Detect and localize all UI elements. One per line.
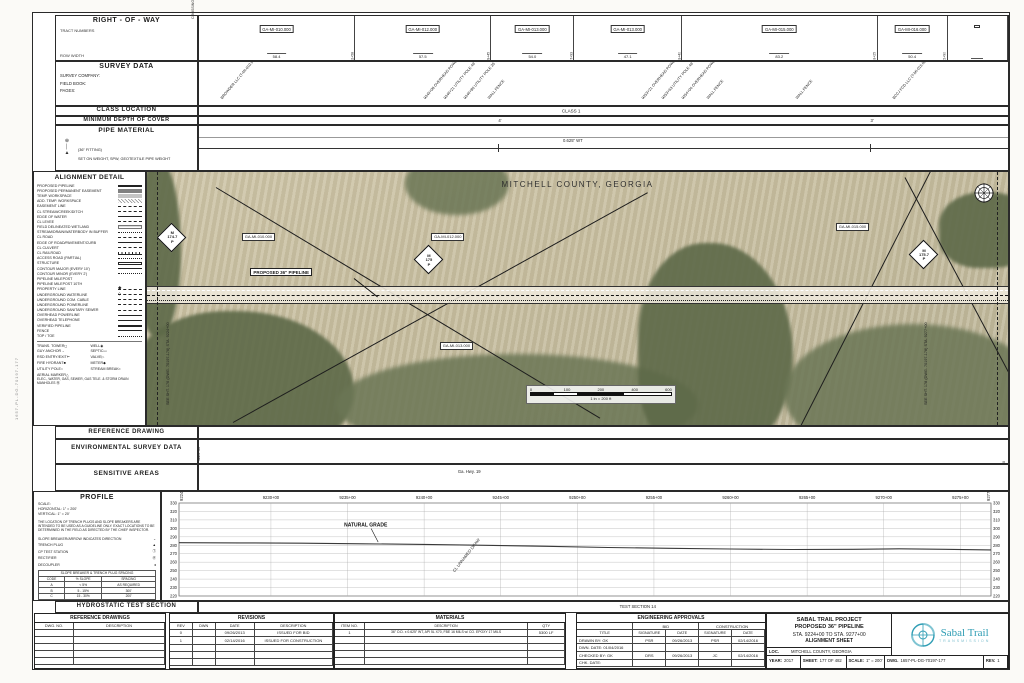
survey-band: SURVEY DATA SURVEY COMPANY: FIELD BOOK: … [33, 61, 1009, 106]
legend-line-sample [118, 268, 142, 269]
reference-drawings-title: REFERENCE DRAWINGS [35, 614, 165, 623]
svg-text:220: 220 [993, 594, 1001, 599]
legend-item-label: ADD. TEMP. WORKSPACE [37, 199, 116, 203]
material-row [335, 658, 565, 665]
sheet-file-label: 1657-PL-DG-70197-177 [14, 357, 19, 420]
legend-line-sample [118, 247, 142, 248]
hydrostatic-band: HYDROSTATIC TEST SECTION TEST SECTION 14 [33, 601, 1009, 613]
svg-text:250: 250 [993, 568, 1001, 573]
tract-row-width: 54.0 [522, 53, 542, 59]
tract-strip: GA-MI-010.000 58.4 9232+58 GA-MI-012.000… [198, 15, 1009, 61]
profile-legend-label: SLOPE BREAKER/ARROW INDICATES DIRECTION [38, 537, 121, 541]
title-block: SABAL TRAIL PROJECT PROPOSED 36" PIPELIN… [766, 613, 1009, 669]
svg-text:320: 320 [170, 509, 178, 514]
symbol-icon: → [61, 349, 65, 353]
svg-text:9235+00: 9235+00 [339, 495, 356, 500]
legend-line-sample [118, 315, 142, 316]
project-stations: STA. 9224+00 TO STA. 9277+00 [767, 632, 891, 639]
row-header: RIGHT - OF - WAY TRACT NUMBERS ROW WIDTH [55, 15, 198, 61]
sensitive-areas-content: Ga. Hwy. 19 [198, 464, 1009, 491]
profile-v-scale: VERTICAL: 1" = 20' [38, 512, 156, 517]
symbol-label: RSD ENTRY/EXIT [37, 355, 67, 359]
crossing-callout: WALL FENCE [487, 79, 505, 100]
tract-cell: GA-MI-012.000 57.5 9239+45 [355, 16, 491, 60]
symbol-label: UTILITY POLE [37, 367, 61, 371]
alignment-sheet: 1657-PL-DG-70197-177 RIGHT - OF - WAY TR… [0, 0, 1024, 683]
profile-band: PROFILE SCALE: HORIZONTAL: 1" = 200' VER… [33, 491, 1009, 601]
svg-text:290: 290 [170, 534, 178, 539]
legend-line-sample [118, 232, 142, 233]
legend-item-label: ACCESS ROAD (PARTIAL) [37, 256, 116, 260]
symbol-icon: ○ [61, 367, 63, 371]
materials-title: MATERIALS [335, 614, 565, 623]
reference-drawings-table: REFERENCE DRAWINGS DWG. NO. DESCRIPTION [34, 613, 166, 669]
svg-text:280: 280 [993, 543, 1001, 548]
profile-legend-icon: ▲ [153, 543, 156, 547]
legend-item-label: EDGE OF ROAD/PAVEMENT/CURB [37, 241, 116, 245]
symbol-icon: ■ [64, 361, 66, 365]
depth-content: 4'3' [198, 116, 1009, 125]
env-station-left: 9224+00 [198, 447, 201, 461]
scale-bar-ticks: 0100200400600 [530, 387, 672, 392]
legend-line-sample [118, 189, 142, 193]
legend-item-label: OVERHEAD TELEPHONE [37, 318, 116, 322]
class-location-header: CLASS LOCATION [55, 106, 198, 116]
revisions-title: REVISIONS [170, 614, 333, 623]
reference-drawings-row [35, 644, 165, 651]
survey-title: SURVEY DATA [56, 63, 197, 70]
depth-header: MINIMUM DEPTH OF COVER [55, 116, 198, 125]
north-arrow-icon [973, 182, 995, 209]
tract-cell: GA-MI-013.000 47.1 9253+40 [574, 16, 682, 60]
profile-legend-item: DECOUPLER ♦ [38, 561, 156, 568]
tract-cell: GA-MI-015.000 83.2 9263+25 [682, 16, 878, 60]
legend-line-sample [118, 221, 142, 222]
reference-drawings-row [35, 630, 165, 637]
svg-text:9250+00: 9250+00 [569, 495, 586, 500]
symbol-icon: ▭ [103, 349, 106, 353]
legend-item-label: PIPELINE MILEPOST 10TH [37, 282, 116, 286]
tract-row-width [971, 58, 983, 59]
svg-text:240: 240 [170, 577, 178, 582]
material-row [335, 651, 565, 658]
milepost-marker: M 175.7 P [909, 240, 939, 270]
depth-band: MINIMUM DEPTH OF COVER 4'3' [33, 116, 1009, 125]
symbol-label: METER [91, 361, 104, 365]
legend-item-label: OVERHEAD POWERLINE [37, 313, 116, 317]
legend-line-sample [118, 199, 142, 203]
legend-line-sample [118, 206, 142, 207]
sensitive-areas-title: SENSITIVE AREAS [56, 470, 197, 477]
revisions-table: REVISIONS REV DWN DATE DESCRIPTION 009/2… [169, 613, 334, 669]
svg-text:270: 270 [170, 551, 178, 556]
pipe-weight-note: SET ON WEIGHT, SPW, GEOTEXTILE PIPE WEIG… [78, 155, 170, 164]
logo-mark-icon [910, 622, 936, 648]
sheet-number: 177 OF 482 [820, 658, 842, 663]
reference-drawings-row [35, 658, 165, 665]
approval-row: DWN. DATE: 01/04/2016 [577, 644, 765, 652]
pipe-tick [498, 144, 499, 153]
spacing-table: SLOPE BREAKER & TRENCH PLUG SPACING CODE… [38, 570, 156, 601]
legend-line-sample [118, 194, 142, 198]
legend-item-label: PROPERTY LINE [37, 287, 116, 291]
milepost-p: P [171, 240, 174, 244]
profile-note: THE LOCATION OF TRENCH PLUGS AND SLOPE B… [38, 520, 156, 532]
profile-legend-label: DECOUPLER [38, 563, 60, 567]
legend-line-sample [118, 282, 142, 287]
legend-line-sample [118, 225, 142, 229]
reference-drawing-content [198, 426, 1009, 439]
profile-legend-items: SLOPE BREAKER/ARROW INDICATES DIRECTION … [38, 535, 156, 568]
legend-line-sample [118, 216, 142, 217]
survey-fields: SURVEY COMPANY: FIELD BOOK: PAGES: [56, 70, 197, 97]
depth-value: 4' [498, 118, 501, 123]
legend-item-label: TOP / TOE [37, 334, 116, 338]
svg-text:9270+00: 9270+00 [876, 495, 893, 500]
tract-station: 9247+93 [569, 52, 573, 61]
reference-drawing-band: REFERENCE DRAWING [33, 426, 1009, 439]
legend-line-sample [118, 211, 142, 212]
approval-row: CHECKED BY: GKDRS09/26/2013JC02/14/2016 [577, 652, 765, 660]
legend-title: ALIGNMENT DETAIL [37, 174, 142, 181]
hydrostatic-title: HYDROSTATIC TEST SECTION [56, 603, 197, 609]
legend-item: PIPELINE MILEPOST 10TH [37, 282, 142, 287]
tract-cell: GA-MI-016.000 50.4 9272+90 [878, 16, 948, 60]
legend-line-sample [118, 320, 142, 321]
svg-text:CL UNNAMED DRAW: CL UNNAMED DRAW [452, 537, 481, 573]
pipe-secondary-line [199, 137, 1008, 138]
drawing-frame: RIGHT - OF - WAY TRACT NUMBERS ROW WIDTH… [32, 12, 1010, 670]
legend-item-label: PROPOSED PIPELINE [37, 184, 116, 188]
revision-row [170, 652, 333, 659]
tract-row-width: 58.4 [267, 53, 287, 59]
matchline-left-text: SEE SHT. 176 (DWG. 70197-176) STA. 9224+… [166, 322, 170, 405]
pipe-tick [870, 144, 871, 153]
tract-number: GA-MI-012.000 [405, 25, 440, 33]
legend-item-label: UNDERGROUND WATERLINE [37, 293, 116, 297]
svg-text:9265+00: 9265+00 [799, 495, 816, 500]
symbol-icon: ◆ [103, 361, 106, 365]
symbol-icon: △ [66, 373, 69, 377]
company-logo: Sabal Trail TRANSMISSION [892, 614, 1008, 655]
symbol-label: SEPTIC [91, 349, 104, 353]
legend-line-sample [118, 252, 142, 255]
revision-row [170, 645, 333, 652]
profile-legend-icon: Ⓡ [153, 556, 157, 561]
map-band: ALIGNMENT DETAIL PROPOSED PIPELINE PROPO… [33, 171, 1009, 426]
svg-text:290: 290 [993, 534, 1001, 539]
symbol-label: FIRE HYDRANT [37, 361, 64, 365]
reference-drawings-row [35, 651, 165, 658]
legend-line-sample [118, 330, 142, 331]
pipe-material-header: PIPE MATERIAL ⊕│▲ (36" FITTING) SET ON W… [55, 125, 198, 171]
profile-legend-label: RECTIFIER [38, 556, 56, 560]
pipe-material-band: PIPE MATERIAL ⊕│▲ (36" FITTING) SET ON W… [33, 125, 1009, 171]
manhole-icon: Ⓜ [56, 381, 59, 385]
approvals-bid-label: BID [633, 623, 699, 629]
tract-cell: GA-MI-013.000 54.0 9247+93 [491, 16, 574, 60]
row-title: RIGHT - OF - WAY [56, 17, 197, 24]
environmental-header: ENVIRONMENTAL SURVEY DATA [55, 439, 198, 464]
environmental-band: ENVIRONMENTAL SURVEY DATA 9224+00 9277+0… [33, 439, 1009, 464]
legend-item: TOP / TOE [37, 333, 142, 338]
svg-text:270: 270 [993, 551, 1001, 556]
tract-number: GA-MI-015.000 [762, 25, 797, 33]
svg-text:310: 310 [170, 517, 178, 522]
legend-item-label: CL RAILROAD [37, 251, 116, 255]
profile-scale-notes: SCALE: HORIZONTAL: 1" = 200' VERTICAL: 1… [38, 502, 156, 517]
crossing-callout: BCCJ FCD LLC (T-MI-015.000) [892, 61, 929, 100]
legend-line-sample [118, 289, 142, 290]
pipe-material-notes: (36" FITTING) SET ON WEIGHT, SPW, GEOTEX… [78, 146, 170, 164]
legend-line-sample [118, 262, 142, 266]
map-tract-label: GA-MI-015.000 [836, 223, 869, 231]
svg-text:300: 300 [993, 526, 1001, 531]
title-block-footer: YEAR:2017 SHEET:177 OF 482 SCALE:1" = 20… [767, 655, 1008, 668]
vegetation-patch [146, 311, 354, 426]
svg-text:9260+00: 9260+00 [722, 495, 739, 500]
tract-number: GA-MI-016.000 [895, 25, 930, 33]
legend-item-label: STREAM/DRAIN/WATERBODY IN BUFFER [37, 230, 116, 234]
svg-text:330: 330 [993, 501, 1001, 506]
profile-legend-icon: ⌄ [153, 537, 156, 541]
profile-legend-label: TRENCH PLUG [38, 543, 63, 547]
reference-drawings-row [35, 637, 165, 644]
revision-row [170, 659, 333, 666]
profile-chart: 3303303203203103103003002902902802802702… [161, 491, 1009, 601]
profile-legend-label: CP TEST STATION [38, 550, 68, 554]
svg-text:330: 330 [170, 501, 178, 506]
svg-text:9245+00: 9245+00 [493, 495, 510, 500]
logo-name: Sabal Trail [939, 627, 990, 639]
pipe-material-content: 0.625" WT [198, 125, 1009, 171]
environmental-content: 9224+00 9277+00 [198, 439, 1009, 464]
profile-legend-icon: Ⓣ [153, 549, 157, 554]
svg-text:NATURAL GRADE: NATURAL GRADE [344, 523, 388, 529]
depth-value: 3' [870, 118, 873, 123]
pipe-material-title: PIPE MATERIAL [56, 127, 197, 134]
profile-legend-icon: ♦ [154, 563, 156, 567]
milepost-marker: M 174.7 P [157, 223, 187, 253]
symbol-icon: ◉ [100, 344, 103, 348]
proposed-pipeline-label: PROPOSED 36" PIPELINE [250, 268, 312, 276]
vegetation-patch [146, 171, 181, 336]
legend-line-sample [118, 258, 142, 259]
vegetation-patch [784, 324, 1009, 426]
svg-text:280: 280 [170, 543, 178, 548]
project-name: SABAL TRAIL PROJECT [767, 617, 891, 624]
field-book-label: FIELD BOOK: [60, 80, 193, 88]
legend-symbols-right: WELL◉SEPTIC▭VALVE▷METER◆STREAM BREAK≈ [91, 343, 143, 378]
map-tract-label: GA-MI-012.000 [431, 233, 464, 241]
reference-drawing-header: REFERENCE DRAWING [55, 426, 198, 439]
scale-bar: 0100200400600 1 in = 200 ft [526, 385, 676, 404]
symbol-icon: ▷ [102, 355, 105, 359]
legend-symbol: STREAM BREAK≈ [91, 366, 143, 372]
pipe-main-line [199, 148, 1008, 149]
class-location-title: CLASS LOCATION [56, 107, 197, 113]
legend-item-label: CL CULVERT [37, 246, 116, 250]
symbol-label: TRANS. TOWER [37, 344, 64, 348]
crossing-callout: WALL FENCE [795, 79, 813, 100]
legend-item-label: UNDERGROUND COM. CABLE [37, 298, 116, 302]
scale-value: 1" = 200' [866, 658, 882, 663]
depth-title: MINIMUM DEPTH OF COVER [56, 117, 197, 123]
tract-row-width: 47.1 [618, 53, 638, 59]
tract-number: GA-MI-013.000 [515, 25, 550, 33]
svg-text:9224+00: 9224+00 [179, 492, 184, 501]
svg-text:310: 310 [993, 517, 1001, 522]
hydrostatic-content: TEST SECTION 14 [198, 601, 1009, 613]
hydrostatic-header: HYDROSTATIC TEST SECTION [55, 601, 198, 613]
symbol-label: AERIAL MARKER [37, 373, 66, 377]
sensitive-area-value: Ga. Hwy. 19 [458, 469, 481, 474]
project-pipeline: PROPOSED 36" PIPELINE [767, 624, 891, 631]
tract-row-width: 57.5 [413, 53, 433, 59]
legend-line-sample [118, 299, 142, 300]
approvals-title: ENGINEERING APPROVALS [577, 614, 765, 623]
map-tract-label: GA-MI-013.000 [440, 342, 473, 350]
crossing-callout: BROWDER LLC (T-MI-010.000) [220, 61, 258, 100]
tract-station: 9272+90 [943, 52, 947, 61]
sheet-type: ALIGNMENT SHEET [767, 638, 891, 645]
county-title: MITCHELL COUNTY, GEORGIA [501, 180, 653, 189]
pipeline-corridor [147, 286, 1008, 304]
material-row [335, 637, 565, 644]
material-row: 136" O.D. x 0.625" WT, API 5L X70, FBE 1… [335, 630, 565, 638]
approvals-table: ENGINEERING APPROVALS BID CONSTRUCTION T… [576, 613, 766, 669]
svg-text:220: 220 [170, 594, 178, 599]
survey-header: SURVEY DATA SURVEY COMPANY: FIELD BOOK: … [55, 61, 198, 106]
tract-cell [948, 16, 1008, 60]
tract-row-width: 50.4 [902, 53, 922, 59]
legend-line-sample [118, 242, 142, 243]
legend-item-label: PIPELINE MILEPOST [37, 277, 116, 281]
svg-text:9275+00: 9275+00 [952, 495, 969, 500]
sensitive-areas-header: SENSITIVE AREAS [55, 464, 198, 491]
legend-line-sample [118, 237, 142, 238]
tract-cell: GA-MI-010.000 58.4 9232+58 [199, 16, 355, 60]
material-row [335, 644, 565, 651]
tract-number: GA-MI-013.000 [610, 25, 645, 33]
milepost-p: P [428, 263, 431, 267]
legend-line-sample [118, 273, 142, 274]
tract-station: 9253+40 [677, 52, 681, 61]
matchline-right-text: SEE SHT. 178 (DWG. 70197-178) STA. 9277+… [924, 322, 928, 405]
legend-manhole-note: ELEC., WATER, GAS, SEWER, GAS TELE. & ST… [37, 378, 142, 386]
row-width-label: ROW WIDTH [60, 53, 84, 58]
crossing-label: CROSSING [191, 0, 195, 19]
matchline-left [157, 172, 158, 425]
legend-item-label: FIELD DELINEATED WETLAND [37, 225, 116, 229]
class-location-band: CLASS LOCATION CLASS 1 [33, 106, 1009, 116]
svg-text:320: 320 [993, 509, 1001, 514]
loc-label: LOC. [769, 649, 791, 654]
revision-row: 009/26/2013ISSUED FOR BID [170, 630, 333, 638]
svg-text:260: 260 [993, 560, 1001, 565]
svg-text:9255+00: 9255+00 [646, 495, 663, 500]
bottom-band: REFERENCE DRAWINGS DWG. NO. DESCRIPTION … [33, 613, 1009, 669]
legend-item-label: FENCE [37, 329, 116, 333]
tract-station: 9239+45 [486, 52, 490, 61]
svg-text:9277+00: 9277+00 [986, 492, 991, 501]
svg-text:250: 250 [170, 568, 178, 573]
symbol-icon: ◻ [64, 344, 67, 348]
legend-items: PROPOSED PIPELINE PROPOSED PERMANENT EAS… [37, 183, 142, 339]
symbol-label: WELL [91, 344, 101, 348]
reference-drawing-title: REFERENCE DRAWING [56, 429, 197, 435]
legend-line-sample [118, 310, 142, 311]
svg-text:9240+00: 9240+00 [416, 495, 433, 500]
approval-row: DRAWN BY: GKPSR09/26/2013PSR02/14/2016 [577, 637, 765, 645]
approvals-construction-label: CONSTRUCTION [699, 623, 765, 629]
svg-text:300: 300 [170, 526, 178, 531]
legend-item-label: VERIFIED PIPELINE [37, 324, 116, 328]
legend-item-label: CL ROAD [37, 235, 116, 239]
svg-text:230: 230 [993, 585, 1001, 590]
pipe-wall-value: 0.625" WT [563, 138, 583, 143]
pipe-fitting-note: (36" FITTING) [78, 146, 170, 155]
legend-item-label: CONTOUR MINOR (EVERY 2') [37, 272, 116, 276]
svg-text:230: 230 [170, 585, 178, 590]
year-value: 2017 [784, 658, 793, 663]
pages-label: PAGES: [60, 87, 193, 95]
legend-item-label: EASEMENT LINE [37, 204, 116, 208]
environmental-title: ENVIRONMENTAL SURVEY DATA [56, 444, 197, 451]
alignment-detail-legend: ALIGNMENT DETAIL PROPOSED PIPELINE PROPO… [33, 171, 146, 426]
tract-station: 9232+58 [350, 52, 354, 61]
easement-edge-line [147, 300, 1008, 301]
materials-table: MATERIALS ITEM NO. DESCRIPTION QTY 136" … [334, 613, 566, 669]
approval-row: CHK. DATE: [577, 660, 765, 668]
class-location-value: CLASS 1 [562, 109, 581, 114]
legend-line-sample [118, 336, 142, 337]
legend-symbols-left: TRANS. TOWER◻GUY ANCHOR→RSD ENTRY/EXIT⊢F… [37, 343, 89, 378]
tract-number: GA-MI-010.000 [259, 25, 294, 33]
right-of-way-band: RIGHT - OF - WAY TRACT NUMBERS ROW WIDTH… [33, 15, 1009, 61]
vegetation-patch [405, 171, 508, 215]
pipeline-centerline [147, 295, 1008, 296]
workspace-edge-line [147, 290, 1008, 291]
crossing-callout: WALL FENCE [706, 79, 724, 100]
legend-item-label: UNDERGROUND POWERLINE [37, 303, 116, 307]
symbol-label: VALVE [91, 355, 102, 359]
legend-item-label: PROPOSED PERMANENT EASEMENT [37, 189, 116, 193]
matchline-right [997, 172, 998, 425]
legend-line-sample [118, 185, 142, 187]
legend-item-label: STRUCTURE [37, 261, 116, 265]
milepost-marker: M 175 P [414, 245, 444, 275]
legend-item-label: CL LEVEE [37, 220, 116, 224]
profile-title: PROFILE [38, 494, 156, 501]
tract-number [974, 25, 980, 28]
legend-item-label: EDGE OF WATER [37, 215, 116, 219]
legend-item-label: CL STREAM/CREEK/DITCH [37, 210, 116, 214]
symbol-icon: ≈ [119, 367, 121, 371]
crossing-callouts: BROWDER LLC (T-MI-010.000) 9245+08 OVERH… [198, 61, 1009, 106]
scale-bar-caption: 1 in = 200 ft [530, 396, 672, 401]
symbol-icon: ⊢ [67, 355, 70, 359]
pipe-symbol-icon: ⊕│▲ [62, 138, 72, 166]
svg-text:260: 260 [170, 560, 178, 565]
loc-value: MITCHELL COUNTY, GEORGIA [791, 649, 852, 654]
project-title-cell: SABAL TRAIL PROJECT PROPOSED 36" PIPELIN… [767, 614, 892, 655]
location-row: LOC. MITCHELL COUNTY, GEORGIA [767, 647, 891, 655]
legend-item-label: TEMP. WORKSPACE [37, 194, 116, 198]
revision-row: 102/14/2016ISSUED FOR CONSTRUCTION [170, 637, 333, 645]
logo-subtitle: TRANSMISSION [939, 639, 990, 643]
svg-text:240: 240 [993, 577, 1001, 582]
